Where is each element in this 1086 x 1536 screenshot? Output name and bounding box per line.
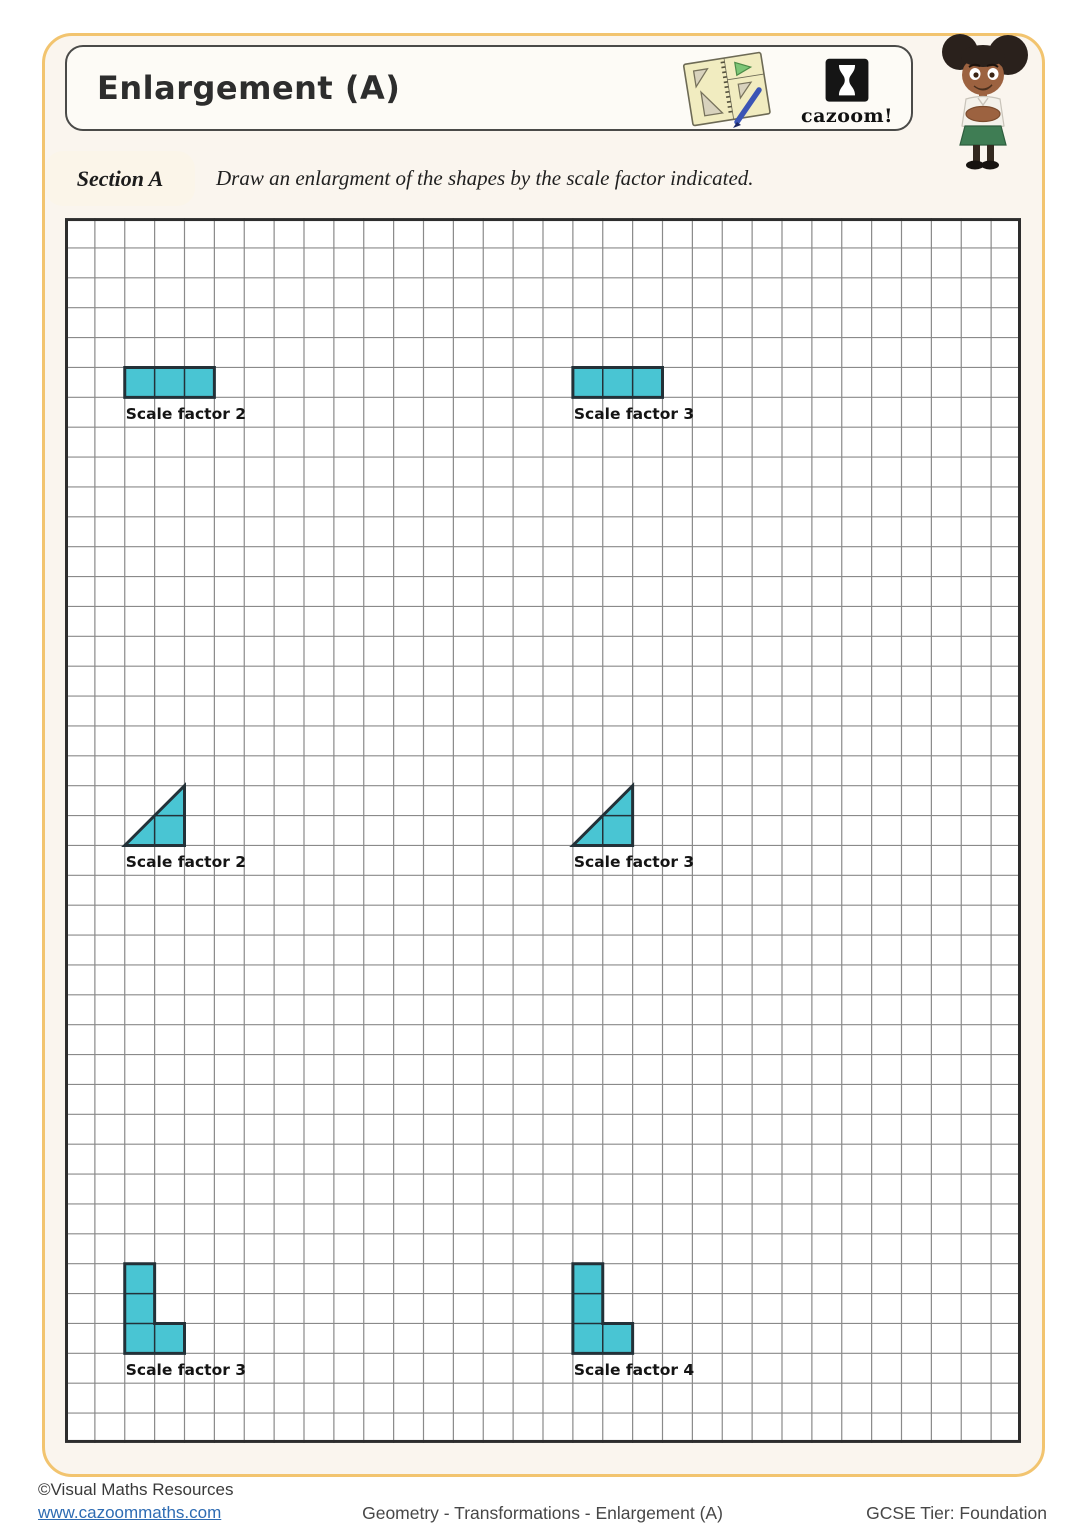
instruction-text: Draw an enlargment of the shapes by the …: [216, 151, 754, 206]
shape-label: Scale factor 3: [574, 853, 694, 871]
shape-label: Scale factor 2: [126, 405, 246, 423]
footer: ©Visual Maths Resources www.cazoommaths.…: [38, 1478, 1047, 1528]
footer-credits: ©Visual Maths Resources www.cazoommaths.…: [38, 1478, 234, 1524]
header-icons: cazoom!: [679, 47, 893, 133]
cazoom-logo: cazoom!: [801, 57, 893, 127]
section-label: Section A: [45, 151, 195, 206]
student-character-illustration: [928, 26, 1042, 172]
cazoom-logo-text: cazoom!: [801, 105, 893, 127]
tier-label: GCSE Tier: Foundation: [866, 1503, 1047, 1524]
shape-label: Scale factor 4: [574, 1361, 695, 1379]
header: Enlargement (A): [65, 45, 913, 131]
cazoom-logo-icon: [822, 57, 872, 107]
worksheet-grid: Scale factor 2Scale factor 3Scale factor…: [65, 218, 1021, 1443]
shape-label: Scale factor 3: [126, 1361, 246, 1379]
shape-label: Scale factor 2: [126, 853, 246, 871]
breadcrumb: Geometry - Transformations - Enlargement…: [362, 1503, 723, 1524]
page-title: Enlargement (A): [97, 69, 400, 107]
shape-label: Scale factor 3: [574, 405, 694, 423]
copyright-text: ©Visual Maths Resources: [38, 1478, 234, 1501]
website-link[interactable]: www.cazoommaths.com: [38, 1503, 221, 1522]
geometry-paper-icon: [679, 50, 775, 130]
